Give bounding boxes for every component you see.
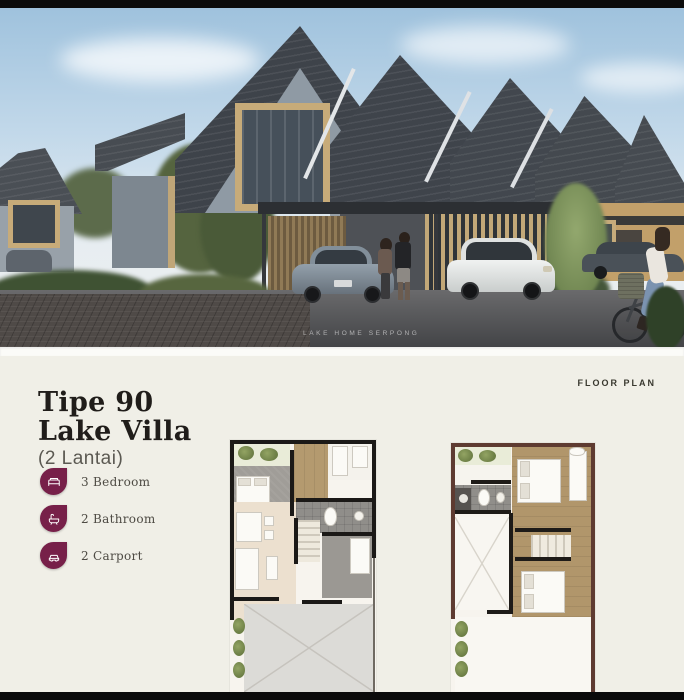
plant (479, 450, 496, 462)
cloud (400, 26, 570, 64)
carport-markings (244, 604, 374, 692)
brochure-page: { "colors": { "background": "#f0efe7", "… (0, 0, 684, 700)
unit-title-block: Tipe 90 Lake Villa (2 Lantai) (38, 389, 192, 470)
wall (515, 557, 571, 561)
plant (233, 640, 245, 656)
sink (496, 492, 505, 503)
floor-plan-ground (230, 440, 376, 692)
outer-wall (591, 443, 595, 692)
details-section: FLOOR PLAN Tipe 90 Lake Villa (2 Lantai)… (0, 356, 684, 692)
chair (264, 516, 274, 526)
plant (455, 621, 468, 637)
sofa (235, 548, 259, 590)
wheel (461, 282, 479, 300)
outer-wall (451, 443, 455, 619)
wood-pillar (168, 176, 175, 268)
pillow (520, 483, 530, 499)
headlight (543, 266, 552, 272)
bicycle-basket (618, 273, 644, 299)
toilet (324, 507, 337, 526)
chair (264, 530, 274, 540)
wall (294, 518, 298, 564)
feature-bathroom-label: 2 Bathroom (81, 512, 156, 526)
wall (455, 510, 511, 514)
car-white-suv (447, 238, 555, 300)
wheel (304, 286, 321, 303)
top-letterbox-bar (0, 0, 684, 8)
boundary-line (373, 558, 375, 692)
coffee-table (266, 556, 278, 580)
hero-photo: LAKE HOME SERPONG (0, 8, 684, 347)
carport-beam (258, 202, 564, 214)
bottom-letterbox-bar (0, 692, 684, 700)
people-couple (372, 230, 416, 303)
wall (515, 528, 571, 532)
plant (260, 448, 278, 461)
stairs (298, 520, 320, 562)
feature-carport-label: 2 Carport (81, 549, 143, 563)
dining-table (236, 512, 262, 542)
wall (296, 498, 372, 502)
section-divider (0, 347, 684, 356)
watermark-text: LAKE HOME SERPONG (303, 330, 419, 337)
wall (230, 440, 234, 620)
pillow (254, 478, 267, 486)
wall (487, 610, 513, 614)
wall (230, 440, 376, 444)
unit-title-line1: Tipe 90 (38, 389, 192, 418)
feature-bedroom-label: 3 Bedroom (81, 475, 150, 489)
floor-plan-upper (451, 443, 595, 692)
foyer-wood-floor (294, 444, 328, 502)
bath-icon (40, 505, 67, 532)
car (6, 250, 52, 272)
plant (238, 446, 254, 460)
plant (233, 662, 245, 678)
wall (372, 440, 376, 558)
window (8, 200, 60, 248)
wardrobe (569, 451, 587, 501)
sink (459, 494, 468, 503)
wheel (523, 282, 541, 300)
cloud (60, 38, 260, 82)
plant (455, 641, 468, 657)
toilet (478, 489, 490, 506)
kitchen-counter (332, 446, 348, 476)
pillow (520, 461, 530, 477)
pillow (524, 574, 534, 589)
sink (354, 511, 364, 521)
wall (290, 450, 294, 516)
floor-plan-label: FLOOR PLAN (578, 378, 657, 388)
paver-driveway (0, 294, 310, 347)
house-wall (112, 176, 174, 268)
stairs (531, 535, 571, 557)
unit-title-line2: Lake Villa (38, 418, 192, 447)
tub (569, 447, 585, 456)
terrace (455, 617, 591, 692)
foreground-plant (646, 286, 684, 347)
kitchen-counter (352, 446, 368, 468)
plant (233, 618, 245, 634)
pillow (524, 594, 534, 609)
wall (322, 532, 372, 536)
car-windows (466, 242, 532, 262)
carport-post (434, 214, 438, 298)
rider-hair (655, 227, 670, 251)
void-markings (455, 517, 509, 610)
wall (509, 513, 513, 613)
plant (458, 449, 473, 462)
wall (233, 597, 279, 601)
feature-bathroom: 2 Bathroom (40, 505, 156, 532)
license-plate (334, 280, 352, 287)
outer-wall (451, 443, 595, 447)
unit-subtitle: (2 Lantai) (38, 448, 192, 470)
car-icon (40, 542, 67, 569)
pillow (238, 478, 251, 486)
feature-carport: 2 Carport (40, 542, 143, 569)
wardrobe (350, 538, 370, 574)
feature-bedroom: 3 Bedroom (40, 468, 150, 495)
wall (471, 480, 511, 484)
bed-icon (40, 468, 67, 495)
plant (455, 661, 468, 677)
